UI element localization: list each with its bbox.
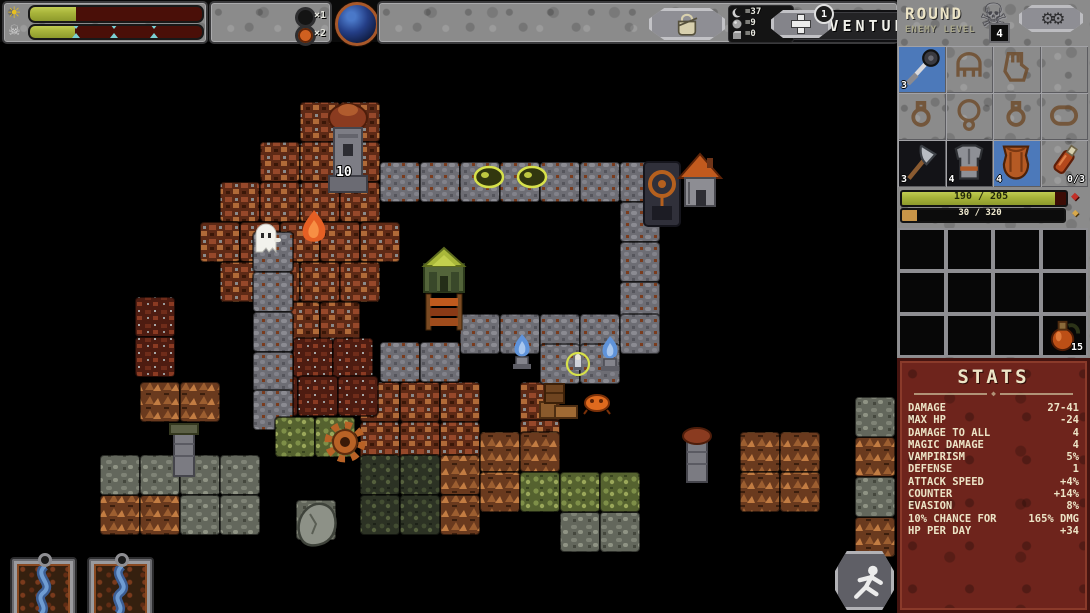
enemy-level-badge: 4 — [989, 23, 1010, 43]
map-tile-v[interactable] — [260, 142, 300, 182]
map-tile-t[interactable] — [400, 455, 440, 495]
map-sprite-wtowerL[interactable] — [170, 424, 198, 476]
stat-label: VAMPIRISM — [908, 451, 965, 463]
map-tile-p[interactable] — [460, 314, 500, 354]
card-ring-icon — [115, 553, 129, 567]
inventory-button[interactable] — [649, 8, 725, 40]
stat-row: DEFENSE1 — [900, 463, 1087, 475]
map-tile-v[interactable] — [220, 182, 260, 222]
map-tile-b[interactable] — [520, 472, 560, 512]
map-sprite-slime[interactable] — [475, 167, 503, 187]
stat-value: 4 — [1073, 427, 1079, 439]
map-tile-p[interactable] — [580, 162, 620, 202]
stat-row: MAGIC DAMAGE4 — [900, 439, 1087, 451]
top-center-panel: ADVENTURE =37=9=0 1 — [377, 1, 899, 44]
map-tile-p[interactable] — [420, 342, 460, 382]
map-sprite-grove[interactable] — [424, 248, 464, 292]
right-sidebar: ROUND ENEMY LEVEL ☠ 4 ⚙⚙ 33440/3 190 / 2… — [897, 0, 1090, 613]
stat-label: MAX HP — [908, 414, 946, 426]
equipment-slot-bracelet[interactable] — [1041, 93, 1089, 140]
xp-bar-text: 30 / 320 — [897, 208, 1063, 218]
speed-controls-panel: » ×1 ×2 — [209, 1, 332, 44]
plus-cross-icon — [792, 15, 810, 33]
card-art-river — [94, 564, 147, 613]
map-tile-r[interactable] — [220, 455, 260, 495]
map-tile-p[interactable] — [420, 162, 460, 202]
equipment-slot-amulet[interactable] — [946, 93, 994, 140]
map-tile-r[interactable] — [855, 477, 895, 517]
round-label: ROUND — [905, 4, 963, 23]
equipment-grid: 33440/3 — [898, 46, 1088, 187]
equipment-slot-axe[interactable]: 3 — [898, 140, 946, 187]
map-sprite-crates[interactable] — [540, 384, 577, 418]
map-tile-t[interactable] — [360, 495, 400, 535]
map-tile-m[interactable] — [780, 432, 820, 472]
card-art-river — [17, 564, 70, 613]
orb-icon — [732, 19, 742, 29]
stat-label: DAMAGE — [908, 402, 946, 414]
map-sprite-gate[interactable] — [644, 162, 680, 226]
stat-value: +4% — [1060, 476, 1079, 488]
stat-row: EVASION8% — [900, 500, 1087, 512]
map-tile-p[interactable] — [253, 272, 293, 312]
map-tile-m[interactable] — [780, 472, 820, 512]
map-sprite-wtowerR[interactable] — [683, 428, 711, 482]
equipment-slot-armor[interactable]: 4 — [946, 140, 994, 187]
map-tile-b[interactable] — [600, 472, 640, 512]
potion-count: 15 — [1071, 342, 1083, 353]
gold-diamond-icon: ◆ — [1072, 206, 1079, 219]
map-tile-v[interactable] — [200, 222, 240, 262]
loop-hero-game-screen: 10 ☀ ☠ » ×1 — [0, 0, 1090, 613]
equipment-slot-mace[interactable]: 3 — [898, 46, 946, 93]
map-tile-t[interactable] — [360, 455, 400, 495]
map-tile-v[interactable] — [440, 382, 480, 422]
stat-label: DAMAGE TO ALL — [908, 427, 990, 439]
map-sprite-boulder[interactable] — [299, 504, 336, 546]
map-tile-c[interactable] — [298, 376, 338, 416]
stat-row: DAMAGE TO ALL4 — [900, 427, 1087, 439]
stat-label: EVASION — [908, 500, 952, 512]
map-tile-m[interactable] — [180, 382, 220, 422]
item-count: 4 — [996, 174, 1002, 185]
item-count: 3 — [901, 174, 907, 185]
stat-value: +34 — [1060, 525, 1079, 537]
enemy-level-label: ENEMY LEVEL — [905, 25, 976, 35]
speed-x2-label: ×2 — [314, 28, 326, 39]
stat-value: 8% — [1066, 500, 1079, 512]
item-count: 3 — [901, 80, 907, 91]
map-tile-m[interactable] — [100, 495, 140, 535]
map-tile-b[interactable] — [560, 472, 600, 512]
retreat-button[interactable] — [835, 551, 894, 610]
map-sprite-creature[interactable] — [584, 395, 610, 414]
map-tile-c[interactable] — [293, 338, 333, 378]
card-ring-icon — [38, 553, 52, 567]
inventory-cell[interactable] — [898, 314, 946, 357]
inventory-cell[interactable] — [898, 271, 946, 314]
stat-row: COUNTER+14% — [900, 488, 1087, 500]
map-tile-c[interactable] — [338, 376, 378, 416]
settings-button[interactable]: ⚙⚙ — [1019, 5, 1083, 32]
inventory-cell[interactable] — [1041, 271, 1089, 314]
inventory-cell[interactable] — [993, 271, 1041, 314]
inventory-cell[interactable] — [898, 228, 946, 271]
map-tile-r[interactable] — [560, 512, 600, 552]
game-map[interactable]: 10 — [0, 42, 897, 613]
equipment-slot-vial[interactable]: 0/3 — [1041, 140, 1089, 187]
map-tile-v[interactable] — [360, 222, 400, 262]
map-tile-v[interactable] — [340, 262, 380, 302]
day-progress-bar — [28, 5, 204, 23]
hp-bar-text: 190 / 205 — [897, 191, 1065, 202]
map-tile-r[interactable] — [180, 495, 220, 535]
map-tile-c[interactable] — [333, 338, 373, 378]
inventory-cell[interactable] — [946, 271, 994, 314]
stat-label: ATTACK SPEED — [908, 476, 984, 488]
map-tile-m[interactable] — [740, 472, 780, 512]
map-tile-m[interactable] — [140, 495, 180, 535]
map-tile-r[interactable] — [100, 455, 140, 495]
stats-title: STATS — [900, 366, 1087, 388]
item-count: 4 — [949, 174, 955, 185]
map-tile-p[interactable] — [380, 342, 420, 382]
map-tile-v[interactable] — [400, 382, 440, 422]
map-tile-c[interactable] — [135, 297, 175, 337]
map-tile-v[interactable] — [300, 262, 340, 302]
stat-label: MAGIC DAMAGE — [908, 439, 984, 451]
map-tile-m[interactable] — [140, 382, 180, 422]
sun-icon: ☀ — [7, 5, 21, 21]
map-sprite-banner[interactable] — [426, 294, 462, 330]
stat-value: 5% — [1066, 451, 1079, 463]
stat-value: +14% — [1054, 488, 1079, 500]
map-sprite-house[interactable] — [679, 154, 721, 206]
skull-icon: ☠ — [8, 24, 21, 38]
inventory-cell[interactable] — [946, 228, 994, 271]
map-tile-p[interactable] — [620, 242, 660, 282]
stat-value: -24 — [1060, 414, 1079, 426]
resource-value: =37 — [745, 8, 761, 17]
card-river[interactable] — [10, 557, 77, 613]
inventory-cell[interactable] — [1041, 228, 1089, 271]
stat-row: MAX HP-24 — [900, 414, 1087, 426]
stat-row: HP PER DAY+34 — [900, 525, 1087, 537]
equipment-slot-empty[interactable] — [1041, 46, 1089, 93]
cube-icon — [732, 30, 742, 40]
stat-row: VAMPIRISM5% — [900, 451, 1087, 463]
map-tile-r[interactable] — [220, 495, 260, 535]
map-tile-v[interactable] — [260, 182, 300, 222]
map-tile-m[interactable] — [480, 472, 520, 512]
map-tile-v[interactable] — [320, 222, 360, 262]
boss-bar-markers — [30, 26, 202, 38]
stat-row: DAMAGE27-41 — [900, 402, 1087, 414]
equipment-slot-helmet[interactable] — [946, 46, 994, 93]
map-tile-p[interactable] — [380, 162, 420, 202]
map-tile-p[interactable] — [253, 352, 293, 392]
map-tile-p[interactable] — [540, 344, 580, 384]
stat-row: ATTACK SPEED+4% — [900, 476, 1087, 488]
inventory-cell[interactable]: 15 — [1041, 314, 1089, 357]
equipment-slot-chest[interactable]: 4 — [993, 140, 1041, 187]
map-tile-p[interactable] — [620, 314, 660, 354]
inventory-cell[interactable] — [946, 314, 994, 357]
stat-value: 165% DMG — [1028, 513, 1079, 525]
map-tile-p[interactable] — [540, 162, 580, 202]
inventory-cell[interactable] — [993, 314, 1041, 357]
map-tile-m[interactable] — [855, 437, 895, 477]
map-tile-c[interactable] — [135, 337, 175, 377]
stat-label: COUNTER — [908, 488, 952, 500]
time-bars-panel: ☀ ☠ — [2, 1, 208, 44]
equipment-slot-gauntlet[interactable] — [993, 46, 1041, 93]
map-tile-p[interactable] — [253, 312, 293, 352]
resource-value: =0 — [745, 30, 756, 39]
map-tile-b[interactable] — [275, 417, 315, 457]
equipment-slot-ring[interactable] — [993, 93, 1041, 140]
boss-progress-bar — [28, 24, 204, 40]
inventory-grid: 15 — [898, 228, 1088, 357]
stat-label: DEFENSE — [908, 463, 952, 475]
map-tile-m[interactable] — [480, 432, 520, 472]
map-tile-r[interactable] — [855, 397, 895, 437]
stats-panel: STATS ◆ DAMAGE27-41MAX HP-24DAMAGE TO AL… — [897, 358, 1090, 613]
stat-label: HP PER DAY — [908, 525, 971, 537]
stat-label: 10% CHANCE FOR — [908, 513, 997, 525]
speed-x2-toggle[interactable] — [295, 25, 316, 46]
item-count: 0/3 — [1067, 174, 1085, 185]
resource-value: =9 — [745, 19, 756, 28]
map-tile-m[interactable] — [740, 432, 780, 472]
traits-badge: 1 — [814, 4, 834, 24]
map-tile-m[interactable] — [440, 495, 480, 535]
map-tile-v[interactable] — [320, 302, 360, 342]
map-tile-m[interactable] — [440, 455, 480, 495]
inventory-cell[interactable] — [993, 228, 1041, 271]
map-tile-t[interactable] — [400, 495, 440, 535]
stat-value: 1 — [1073, 463, 1079, 475]
equipment-slot-ring[interactable] — [898, 93, 946, 140]
gears-icon: ⚙⚙ — [1022, 8, 1080, 29]
map-tile-m[interactable] — [520, 432, 560, 472]
stat-value: 4 — [1073, 439, 1079, 451]
card-river[interactable] — [87, 557, 154, 613]
stat-value: 27-41 — [1047, 402, 1079, 414]
crescent-icon — [732, 8, 742, 18]
satchel-icon — [672, 11, 702, 37]
stat-row: 10% CHANCE FOR165% DMG — [900, 513, 1087, 525]
red-gem-icon: ◆ — [1071, 189, 1079, 204]
ornament-divider: ◆ — [914, 389, 1073, 398]
running-figure-icon — [843, 560, 887, 602]
planet-orb-icon[interactable] — [335, 2, 379, 46]
map-tile-r[interactable] — [600, 512, 640, 552]
map-sprite-slime[interactable] — [518, 167, 546, 187]
speed-x1-label: ×1 — [314, 10, 326, 21]
map-damage-label: 10 — [336, 165, 352, 180]
